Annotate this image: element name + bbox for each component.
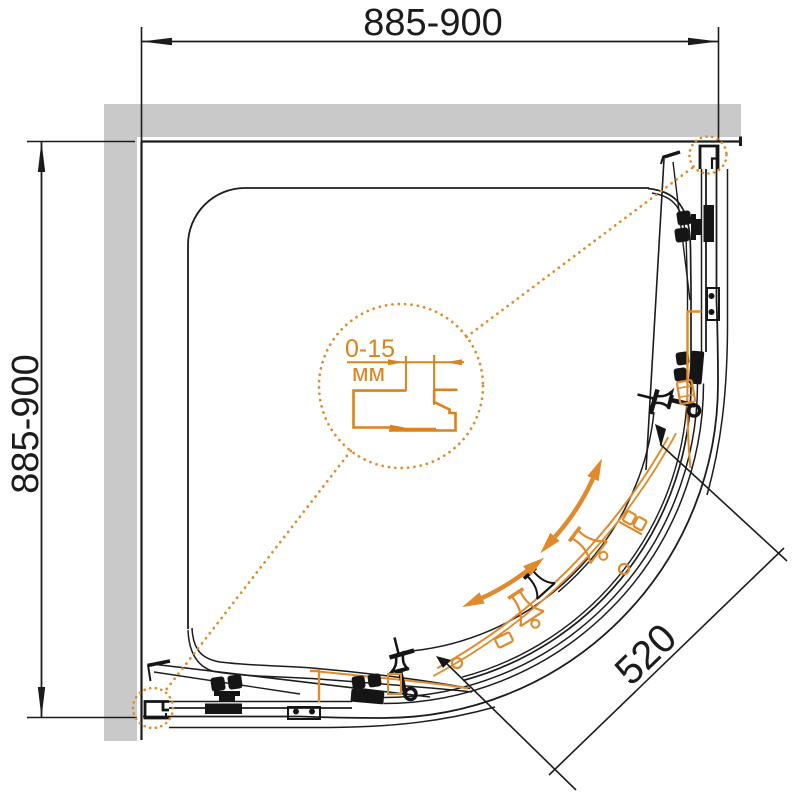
svg-text:885-900: 885-900 (5, 354, 47, 493)
svg-text:мм: мм (352, 360, 385, 387)
svg-text:0-15: 0-15 (345, 335, 395, 363)
svg-text:885-900: 885-900 (363, 2, 502, 44)
